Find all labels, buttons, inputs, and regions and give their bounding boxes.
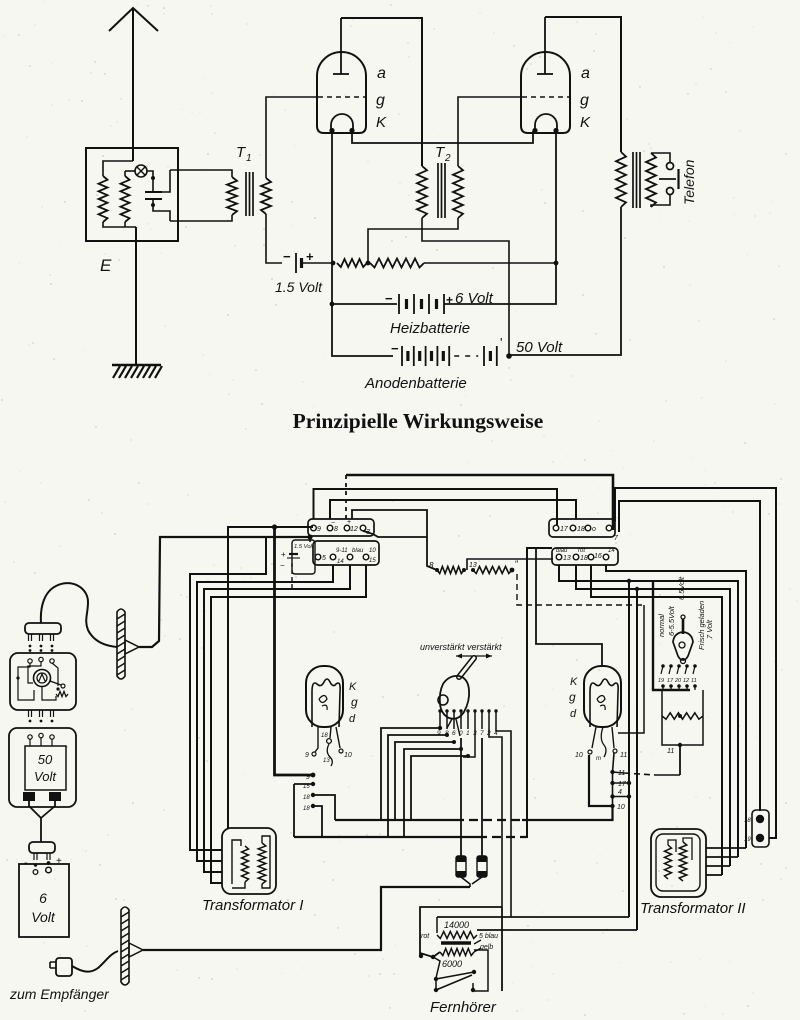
svg-text:blau: blau [352, 548, 364, 554]
svg-text:18: 18 [744, 818, 751, 824]
svg-text:11: 11 [620, 752, 627, 759]
svg-text:10: 10 [575, 752, 583, 759]
svg-text:rot: rot [578, 548, 585, 554]
svg-text:10: 10 [617, 804, 625, 811]
svg-text:18: 18 [580, 555, 588, 562]
svg-text:o: o [592, 526, 596, 533]
svg-text:+: + [281, 550, 286, 559]
svg-text:+: + [446, 293, 453, 307]
svg-text:18: 18 [321, 733, 328, 739]
svg-text:E: E [100, 256, 112, 275]
svg-text:-: - [24, 857, 28, 869]
svg-text:0: 0 [459, 730, 463, 737]
svg-text:18: 18 [577, 526, 585, 533]
svg-text:18: 18 [303, 806, 310, 812]
svg-text:m: m [596, 756, 601, 762]
svg-text:Volt: Volt [34, 769, 57, 784]
svg-text:8: 8 [429, 561, 434, 570]
svg-text:K: K [570, 676, 578, 688]
svg-text:9: 9 [317, 526, 321, 533]
svg-text:16: 16 [594, 553, 602, 560]
svg-text:6-5.5Volt: 6-5.5Volt [667, 605, 676, 636]
svg-text:5 blau: 5 blau [479, 933, 498, 940]
svg-text:7: 7 [480, 730, 484, 737]
svg-text:zum Empfänger: zum Empfänger [9, 986, 110, 1002]
svg-text:14: 14 [608, 548, 615, 554]
svg-text:g: g [569, 690, 576, 704]
svg-text:8: 8 [445, 730, 449, 737]
svg-text:4: 4 [618, 789, 622, 796]
svg-text:−: − [283, 249, 291, 264]
svg-text:K: K [376, 114, 387, 131]
svg-text:14000: 14000 [444, 920, 469, 930]
svg-text:−: − [391, 341, 399, 356]
svg-text:g: g [376, 92, 385, 109]
svg-text:15: 15 [303, 784, 310, 790]
svg-text:12: 12 [683, 678, 689, 684]
svg-text:15: 15 [369, 558, 376, 564]
svg-text:7 Volt: 7 Volt [705, 619, 714, 639]
svg-text:Transformator I: Transformator I [202, 897, 303, 914]
svg-text:+: + [306, 249, 314, 264]
svg-text:6.5Volt: 6.5Volt [677, 576, 686, 600]
svg-text:9: 9 [437, 730, 441, 737]
svg-text:13: 13 [469, 562, 477, 569]
svg-text:Fernhörer: Fernhörer [430, 999, 497, 1016]
svg-text:19: 19 [744, 837, 751, 843]
svg-text:9-11: 9-11 [336, 548, 348, 554]
svg-text:+: + [347, 519, 351, 526]
svg-text:Transformator II: Transformator II [640, 900, 746, 917]
svg-text:a: a [377, 65, 386, 82]
svg-text:rot: rot [421, 933, 430, 940]
svg-text:11: 11 [691, 678, 697, 684]
svg-text:Anodenbatterie: Anodenbatterie [364, 375, 467, 392]
svg-text:10: 10 [369, 548, 376, 554]
svg-text:': ' [500, 335, 502, 350]
svg-text:13: 13 [563, 555, 571, 562]
svg-text:unverstärkt verstärkt: unverstärkt verstärkt [420, 642, 502, 652]
svg-text:−: − [280, 561, 285, 570]
svg-text:19: 19 [658, 678, 664, 684]
svg-text:14: 14 [337, 559, 344, 565]
svg-text:5: 5 [322, 555, 326, 562]
svg-text:11: 11 [667, 748, 674, 755]
svg-text:normal: normal [657, 614, 666, 637]
svg-text:17: 17 [667, 678, 674, 684]
svg-text:1: 1 [246, 153, 252, 164]
svg-text:a: a [581, 65, 590, 82]
svg-text:g: g [351, 695, 358, 709]
svg-text:6000: 6000 [442, 959, 462, 969]
svg-text:d: d [570, 708, 577, 720]
svg-text:6 Volt: 6 Volt [455, 290, 494, 307]
svg-text:blau: blau [556, 548, 568, 554]
svg-text:18: 18 [303, 795, 310, 801]
svg-text:6: 6 [452, 730, 456, 737]
svg-text:K: K [349, 681, 357, 693]
svg-text:50: 50 [38, 752, 53, 767]
svg-text:13: 13 [323, 758, 330, 764]
svg-text:20: 20 [674, 678, 682, 684]
svg-text:1.5 Volt: 1.5 Volt [275, 279, 323, 295]
svg-text:12: 12 [350, 526, 358, 533]
svg-text:−: − [331, 520, 335, 527]
svg-text:50 Volt: 50 Volt [516, 339, 563, 356]
svg-text:17: 17 [618, 781, 627, 788]
svg-text:d: d [349, 713, 356, 725]
svg-text:Volt: Volt [31, 909, 56, 925]
svg-text:Prinzipielle Wirkungsweise: Prinzipielle Wirkungsweise [293, 409, 544, 433]
svg-text:9: 9 [305, 752, 309, 759]
svg-text:Heizbatterie: Heizbatterie [390, 320, 470, 337]
svg-text:g: g [580, 92, 589, 109]
svg-text:1.5 Volt: 1.5 Volt [294, 544, 314, 550]
svg-text:K: K [580, 114, 591, 131]
svg-text:6: 6 [39, 890, 47, 906]
svg-text:−: − [385, 291, 393, 306]
svg-text:2: 2 [444, 153, 451, 164]
svg-text:+: + [56, 856, 62, 867]
svg-text:9: 9 [306, 774, 310, 781]
svg-text:1: 1 [466, 730, 470, 737]
svg-text:17: 17 [560, 526, 569, 533]
svg-text:10: 10 [344, 752, 352, 759]
svg-text:8: 8 [334, 526, 338, 533]
svg-text:Telefon: Telefon [681, 159, 697, 205]
